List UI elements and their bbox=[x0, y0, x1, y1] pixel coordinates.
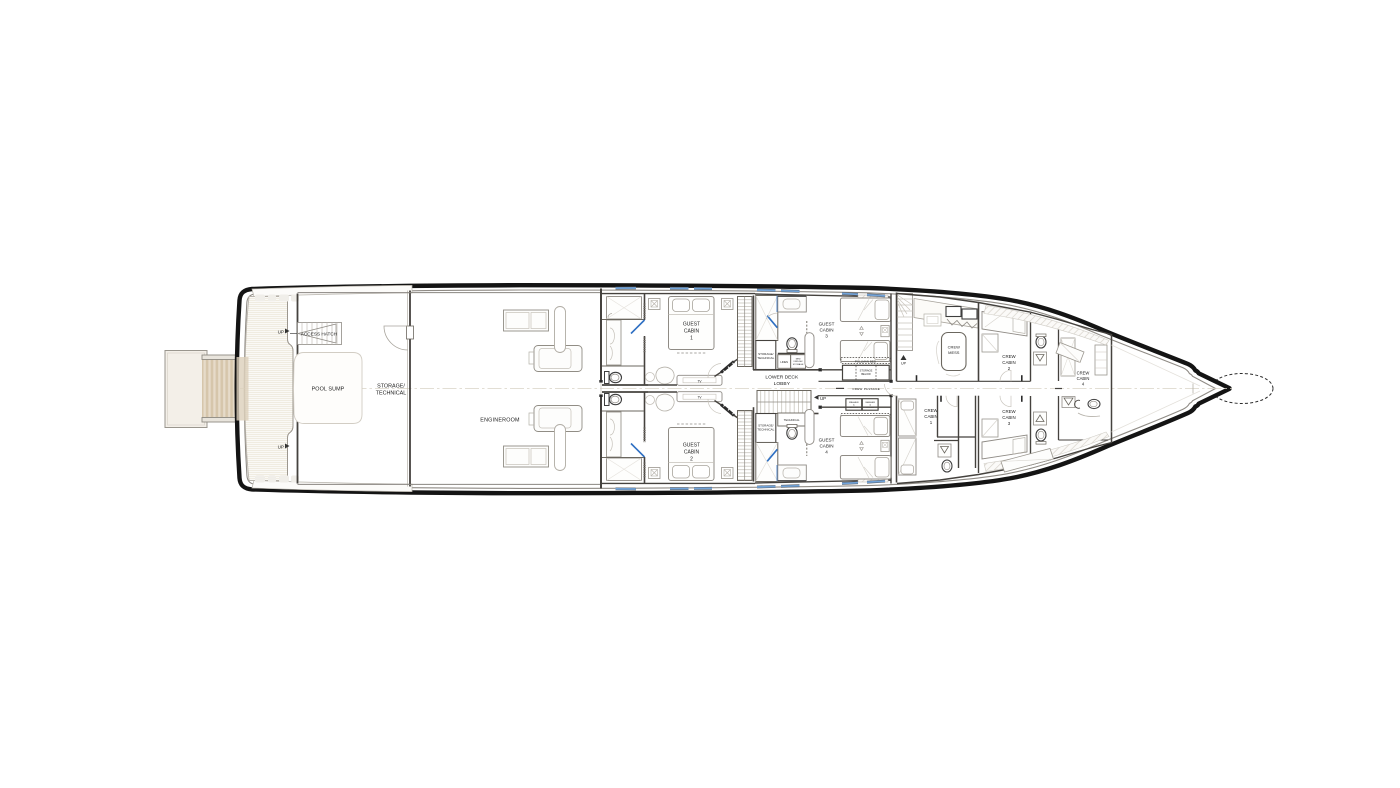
svg-text:CABIN: CABIN bbox=[1002, 415, 1015, 420]
svg-text:LOWER DECK: LOWER DECK bbox=[765, 375, 799, 381]
svg-text:GUEST: GUEST bbox=[819, 438, 835, 443]
svg-text:CABIN: CABIN bbox=[819, 328, 833, 333]
svg-text:TECHNICAL: TECHNICAL bbox=[784, 418, 800, 422]
svg-text:1: 1 bbox=[690, 336, 693, 342]
svg-text:TECHNICAL: TECHNICAL bbox=[376, 391, 407, 397]
svg-text:PULLMAN BED: PULLMAN BED bbox=[855, 360, 877, 364]
svg-text:BELOW: BELOW bbox=[861, 372, 871, 376]
svg-text:CABIN: CABIN bbox=[684, 329, 700, 335]
svg-text:LINEN: LINEN bbox=[780, 360, 788, 364]
svg-text:STORAGE/: STORAGE/ bbox=[377, 384, 405, 390]
svg-text:WASHER: WASHER bbox=[865, 401, 875, 404]
svg-text:3: 3 bbox=[825, 334, 828, 339]
svg-text:CABIN: CABIN bbox=[1002, 360, 1015, 365]
svg-text:POOL SUMP: POOL SUMP bbox=[312, 386, 345, 392]
svg-text:GUEST: GUEST bbox=[683, 443, 700, 449]
svg-text:UP: UP bbox=[278, 329, 284, 334]
svg-text:CABIN: CABIN bbox=[819, 444, 833, 449]
svg-text:CREW: CREW bbox=[924, 408, 938, 413]
svg-text:LOBBY: LOBBY bbox=[774, 381, 791, 387]
svg-text:GUEST: GUEST bbox=[819, 322, 835, 327]
svg-text:MINI: MINI bbox=[796, 358, 801, 360]
svg-text:UP: UP bbox=[278, 444, 284, 449]
svg-text:CREW: CREW bbox=[948, 345, 960, 350]
svg-text:WASHER: WASHER bbox=[849, 401, 859, 404]
svg-text:CREW: CREW bbox=[1077, 371, 1090, 376]
svg-text:ENGINEROOM: ENGINEROOM bbox=[480, 418, 520, 424]
svg-text:FRIDGE/: FRIDGE/ bbox=[794, 361, 803, 363]
svg-text:MESS: MESS bbox=[948, 350, 960, 355]
svg-text:CABIN: CABIN bbox=[684, 450, 700, 456]
svg-text:CREW: CREW bbox=[1002, 409, 1016, 414]
svg-text:CREW PASSAGE: CREW PASSAGE bbox=[852, 387, 880, 391]
svg-text:TECHNICAL: TECHNICAL bbox=[757, 428, 774, 432]
svg-text:CABIN: CABIN bbox=[1077, 376, 1090, 381]
svg-text:ACCESS HATCH: ACCESS HATCH bbox=[301, 332, 337, 337]
svg-text:STORAGE: STORAGE bbox=[793, 363, 804, 366]
svg-text:CABIN: CABIN bbox=[924, 414, 937, 419]
svg-text:GUEST: GUEST bbox=[683, 322, 700, 328]
svg-text:UP: UP bbox=[901, 362, 907, 366]
svg-text:STORAGE: STORAGE bbox=[860, 369, 873, 373]
svg-text:CREW: CREW bbox=[1002, 354, 1016, 359]
svg-text:TECHNICAL: TECHNICAL bbox=[757, 356, 774, 360]
svg-text:4: 4 bbox=[825, 450, 828, 455]
svg-text:2: 2 bbox=[690, 457, 693, 463]
svg-text:UP: UP bbox=[820, 396, 826, 401]
